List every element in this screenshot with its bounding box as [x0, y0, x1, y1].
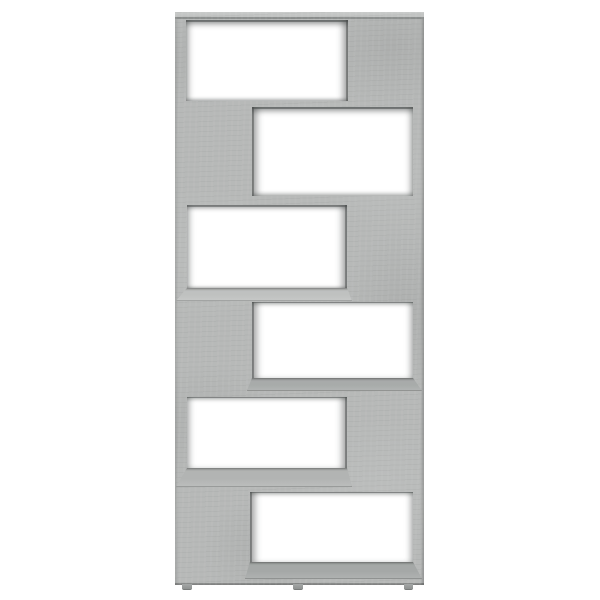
- compartment-opening-6: [250, 492, 413, 562]
- bookcase-top-edge: [175, 12, 424, 19]
- bookcase: [175, 12, 424, 585]
- shelf-top-face-6: [245, 562, 422, 579]
- bookcase-foot-3: [404, 584, 413, 590]
- compartment-opening-1: [186, 20, 348, 101]
- compartment-opening-4: [252, 302, 413, 378]
- bookcase-foot-1: [182, 584, 192, 590]
- shelf-top-face-3: [176, 288, 352, 301]
- compartment-opening-3: [187, 205, 347, 288]
- bookcase-foot-2: [293, 584, 303, 590]
- compartment-opening-5: [187, 397, 347, 468]
- shelf-top-face-4: [247, 378, 422, 391]
- product-photo-canvas: [0, 0, 600, 600]
- compartment-opening-2: [252, 107, 413, 196]
- shelf-top-face-5: [176, 468, 352, 487]
